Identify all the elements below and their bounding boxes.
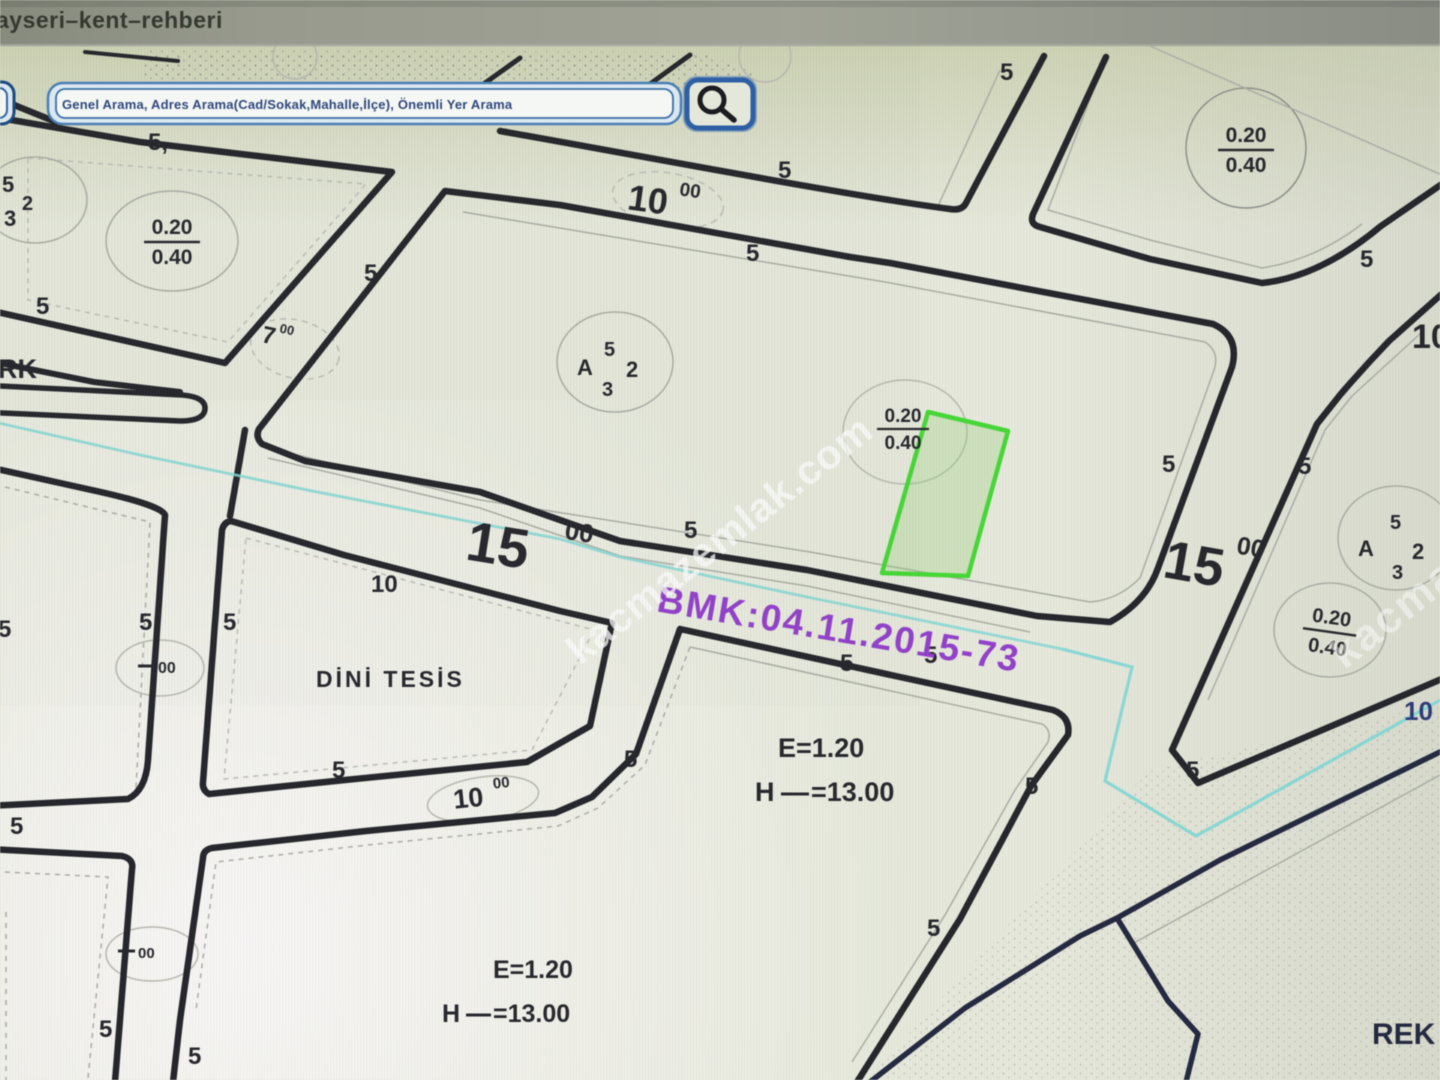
svg-text:ayseri–kent–rehberi: ayseri–kent–rehberi xyxy=(0,7,223,33)
svg-text:Genel Arama, Adres Arama(Cad/S: Genel Arama, Adres Arama(Cad/Sokak,Mahal… xyxy=(62,97,513,112)
